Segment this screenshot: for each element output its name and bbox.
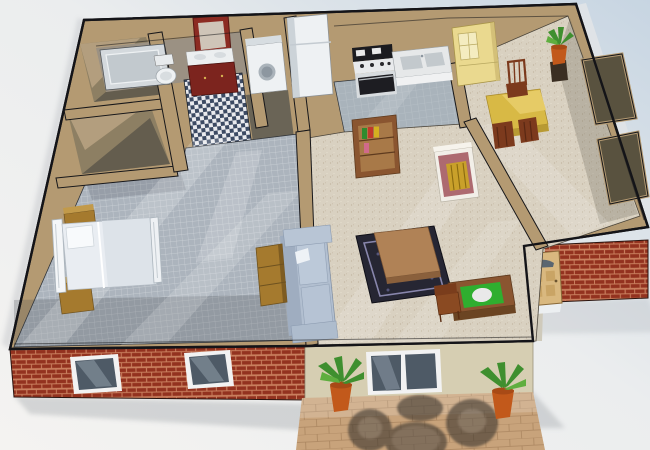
refrigerator[interactable] xyxy=(287,14,333,98)
book-red xyxy=(368,127,373,138)
floor-plan-svg xyxy=(0,0,650,450)
sliding-window-divider xyxy=(401,354,405,390)
stove-oven[interactable] xyxy=(352,44,397,98)
book-pink xyxy=(364,143,369,153)
bookshelf[interactable] xyxy=(352,115,400,178)
faucet xyxy=(421,55,424,58)
bedroom-window-2[interactable] xyxy=(184,350,234,389)
vanity-sink[interactable] xyxy=(186,48,238,96)
floor-plan-render xyxy=(0,0,650,450)
sliding-window[interactable] xyxy=(366,349,442,395)
dining-chair-2[interactable] xyxy=(492,121,515,149)
book-yellow xyxy=(374,127,379,138)
washer[interactable] xyxy=(245,35,287,94)
counter-with-sink[interactable] xyxy=(392,46,453,86)
china-hutch[interactable] xyxy=(452,22,500,86)
book-green xyxy=(362,128,367,139)
fireplace[interactable] xyxy=(433,142,479,202)
patio-chair-back[interactable] xyxy=(397,395,443,421)
bathtub[interactable] xyxy=(100,44,170,90)
door-knob xyxy=(555,280,558,283)
bedroom-window-1[interactable] xyxy=(70,354,122,394)
pillow xyxy=(66,225,94,249)
dining-chair-3[interactable] xyxy=(518,117,539,143)
bed[interactable] xyxy=(52,217,162,293)
brick-wall-south xyxy=(10,346,305,400)
dresser[interactable] xyxy=(256,244,287,306)
